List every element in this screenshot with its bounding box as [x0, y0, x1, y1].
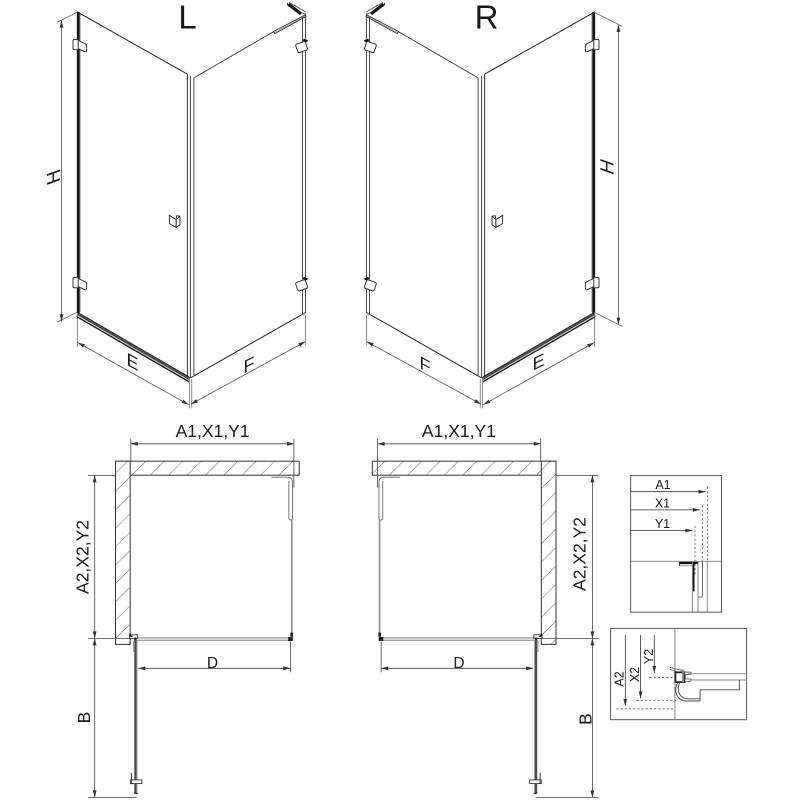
svg-text:A1: A1	[655, 478, 670, 492]
svg-text:A2: A2	[613, 671, 627, 686]
svg-text:B: B	[74, 712, 94, 724]
svg-text:R: R	[475, 0, 499, 36]
svg-text:H: H	[597, 156, 618, 177]
svg-text:L: L	[178, 0, 196, 36]
svg-text:F: F	[243, 353, 254, 378]
svg-text:A2,X2,Y2: A2,X2,Y2	[73, 520, 93, 594]
svg-text:D: D	[453, 655, 464, 672]
svg-text:D: D	[207, 655, 218, 672]
svg-text:B: B	[576, 713, 596, 725]
svg-text:A2,X2,Y2: A2,X2,Y2	[570, 517, 590, 591]
svg-text:A1,X1,Y1: A1,X1,Y1	[422, 421, 496, 441]
svg-text:X2: X2	[628, 667, 642, 682]
svg-text:F: F	[420, 353, 431, 379]
svg-text:X1: X1	[655, 496, 670, 510]
svg-text:A1,X1,Y1: A1,X1,Y1	[176, 421, 250, 441]
svg-text:E: E	[126, 350, 138, 376]
svg-text:Y1: Y1	[655, 517, 670, 531]
svg-text:Y2: Y2	[642, 649, 656, 664]
